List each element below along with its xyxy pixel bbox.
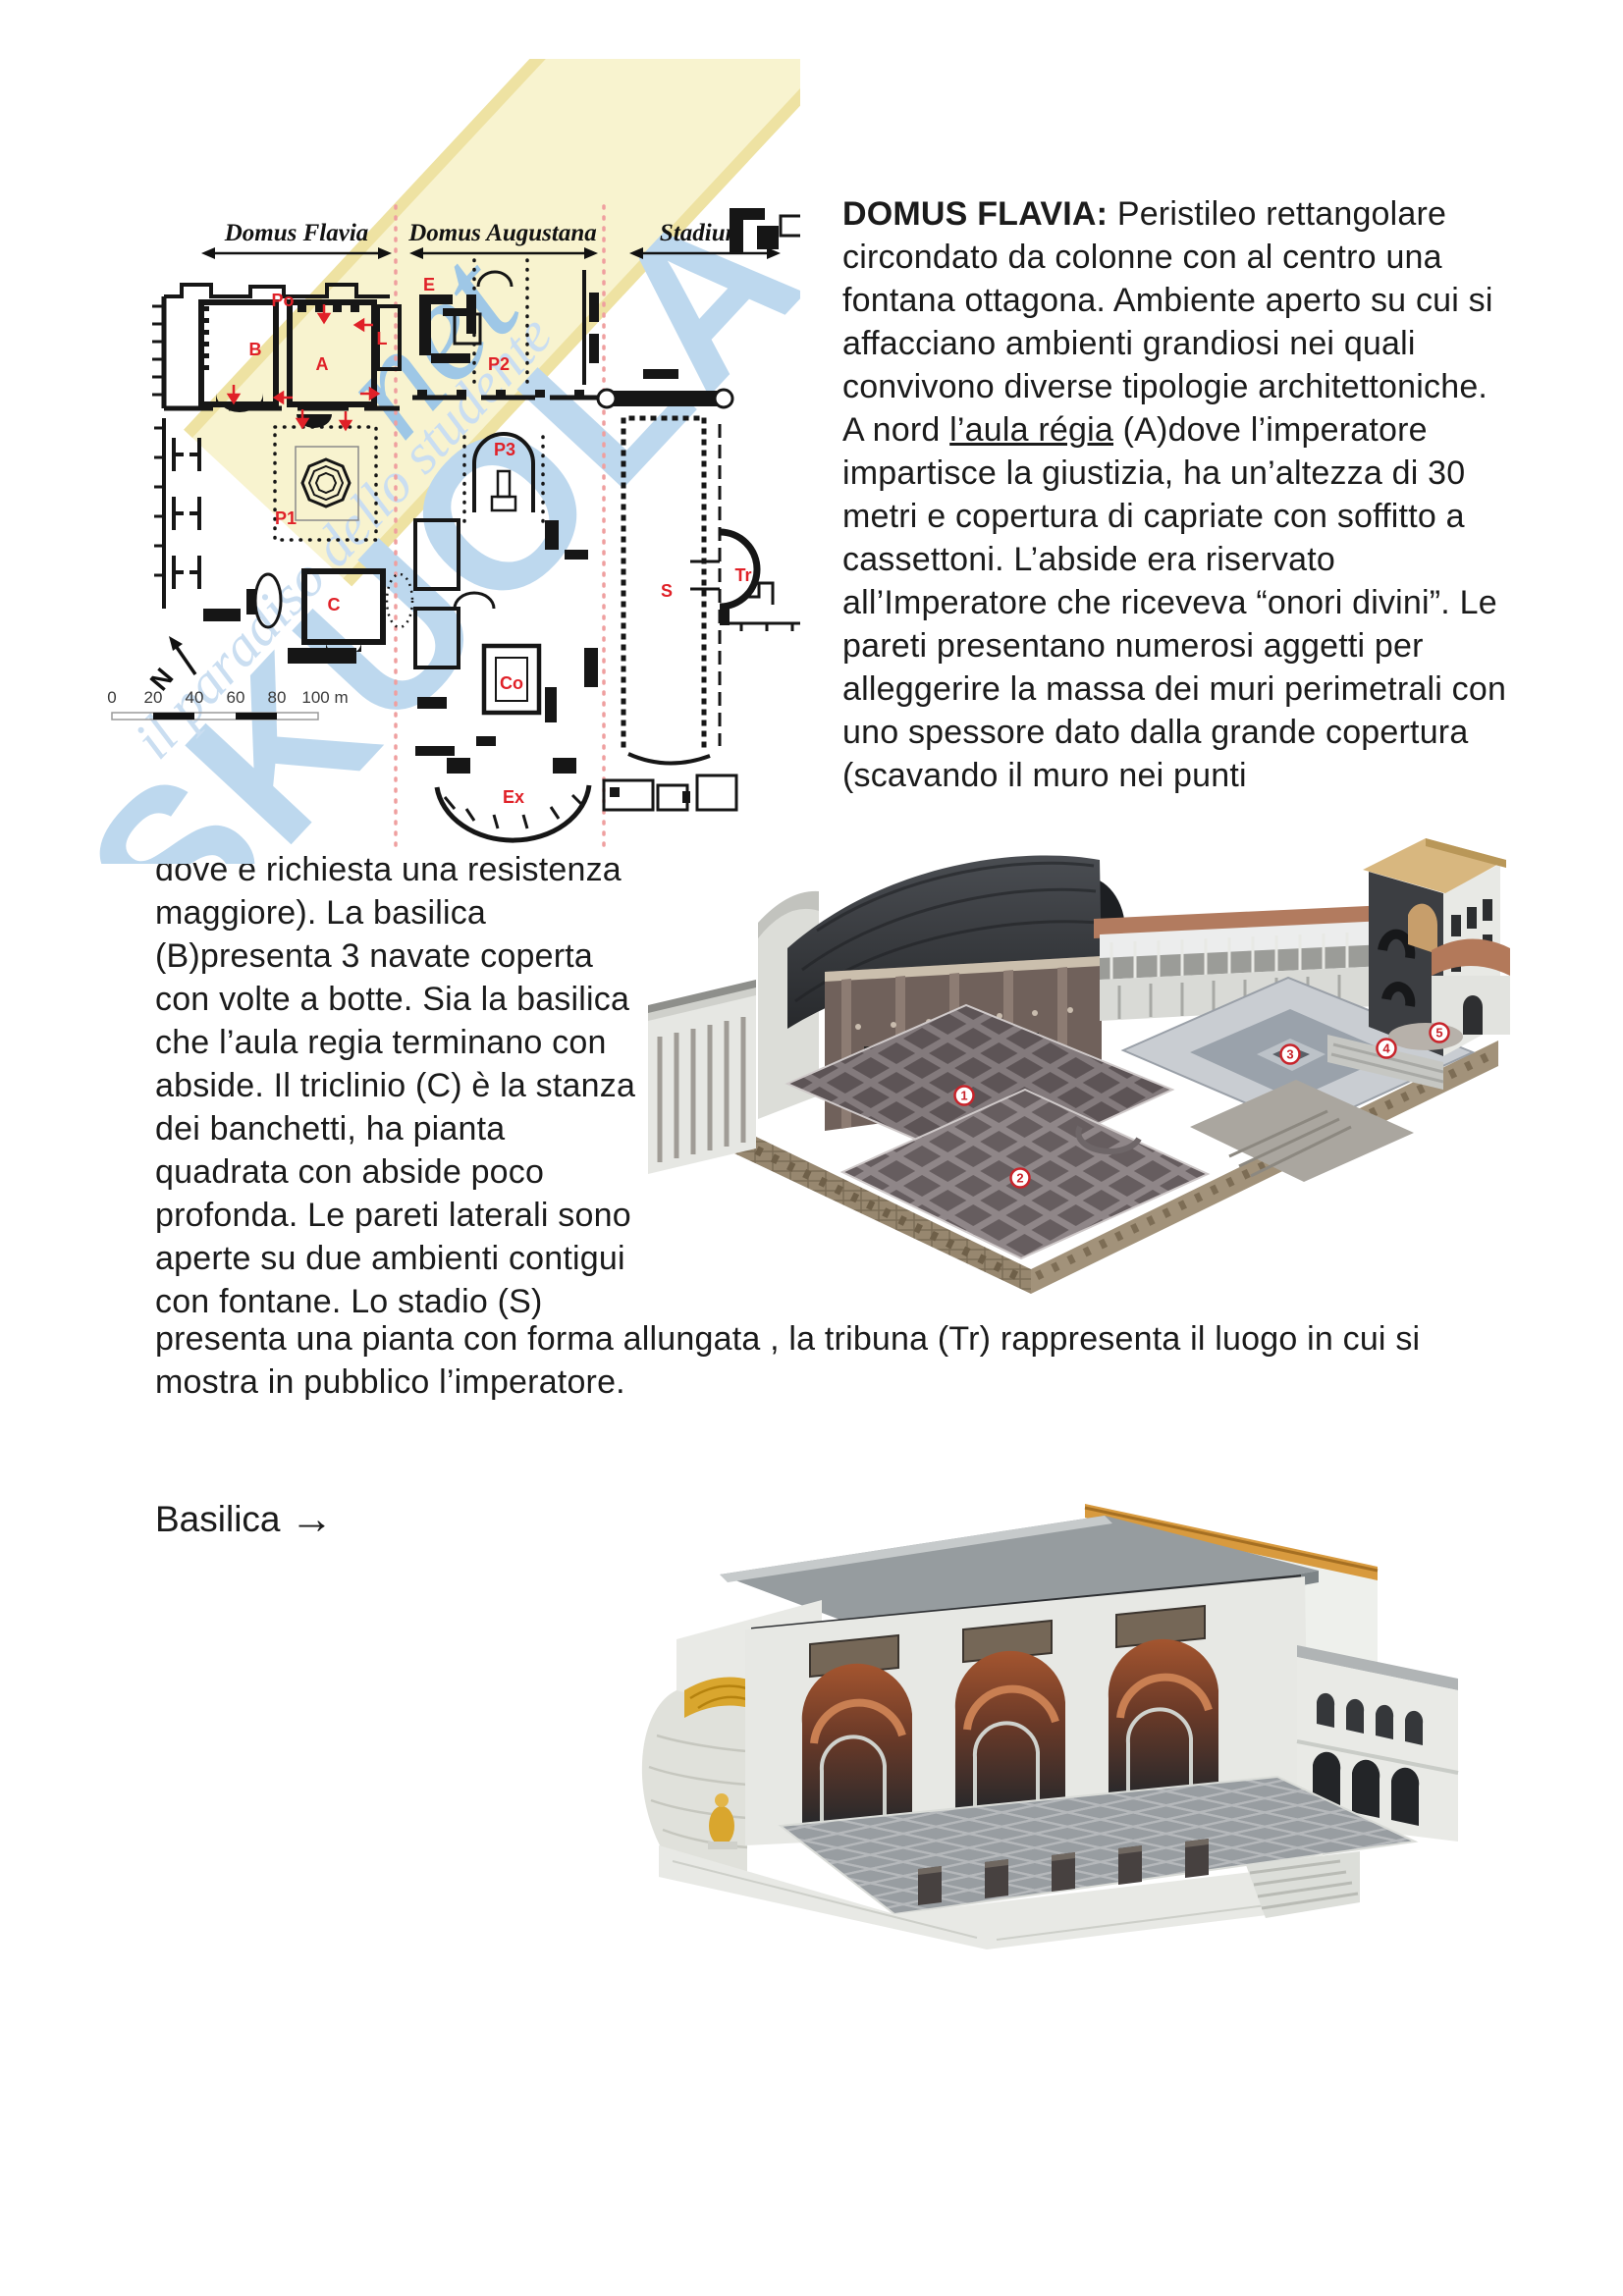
- section-title-domus-augustana: Domus Augustana: [407, 220, 597, 246]
- basilica-section-render: [574, 1480, 1463, 1951]
- svg-text:100 m: 100 m: [301, 688, 348, 707]
- svg-text:5: 5: [1435, 1026, 1442, 1041]
- palace-reconstruction-render: 1 2 3 4 5: [640, 832, 1512, 1296]
- paragraph-basilica-triclinio: dove è richiesta una resistenza maggiore…: [155, 848, 638, 1323]
- svg-text:60: 60: [227, 688, 245, 707]
- plan-stadium: [598, 208, 800, 810]
- svg-text:80: 80: [268, 688, 287, 707]
- paragraph-underlined-phrase: l’aula régia: [949, 411, 1113, 449]
- svg-text:40: 40: [186, 688, 204, 707]
- label-tr: Tr: [734, 565, 751, 585]
- floor-plan-svg: Domus Flavia Domus Augustana Stadium: [54, 59, 800, 864]
- basilica-caption: Basilica→: [155, 1493, 334, 1542]
- label-e: E: [423, 275, 435, 294]
- floor-plan-figure: SKUOLA net il paradiso dello studente Do…: [54, 59, 800, 864]
- svg-text:0: 0: [107, 688, 116, 707]
- paragraph-domus-flavia: DOMUS FLAVIA: Peristileo rettangolare ci…: [842, 192, 1514, 797]
- north-arrow: N: [144, 636, 195, 696]
- plan-room-labels: Po E B A L P2 P3 P1 C Co Ex S Tr: [249, 275, 752, 807]
- label-po: Po: [271, 291, 294, 310]
- section-title-domus-flavia: Domus Flavia: [224, 220, 369, 246]
- paragraph-text: presenta una pianta con forma allungata …: [155, 1320, 1420, 1401]
- basilica-caption-text: Basilica: [155, 1499, 281, 1539]
- paragraph-stadio: presenta una pianta con forma allungata …: [155, 1317, 1432, 1404]
- plan-domus-augustana: [412, 260, 599, 840]
- label-l: L: [377, 329, 388, 348]
- label-b: B: [249, 340, 262, 359]
- paragraph-lead: DOMUS FLAVIA:: [842, 195, 1108, 233]
- plan-section-headers: Domus Flavia Domus Augustana Stadium: [201, 220, 781, 259]
- scale-bar: 0 20 40 60 80 100 m: [107, 688, 348, 720]
- paragraph-text: dove è richiesta una resistenza maggiore…: [155, 851, 635, 1320]
- svg-text:1: 1: [960, 1089, 967, 1103]
- label-co: Co: [500, 673, 523, 693]
- label-a: A: [316, 354, 329, 374]
- label-ex: Ex: [503, 787, 524, 807]
- svg-text:2: 2: [1016, 1171, 1023, 1186]
- label-p2: P2: [488, 354, 510, 374]
- label-s: S: [661, 581, 673, 601]
- svg-text:4: 4: [1382, 1041, 1390, 1056]
- page: { "watermark": { "brand": "SKUOLA", "bra…: [0, 0, 1623, 2296]
- label-p1: P1: [275, 508, 297, 528]
- svg-text:20: 20: [144, 688, 163, 707]
- plan-domus-flavia: [152, 285, 412, 664]
- paragraph-part-2: (A)dove l’imperatore impartisce la giust…: [842, 411, 1506, 794]
- right-arrow-icon: →: [291, 1495, 334, 1543]
- label-p3: P3: [494, 440, 515, 459]
- svg-text:3: 3: [1286, 1047, 1293, 1062]
- label-c: C: [328, 595, 341, 614]
- west-facade-building: [648, 980, 756, 1174]
